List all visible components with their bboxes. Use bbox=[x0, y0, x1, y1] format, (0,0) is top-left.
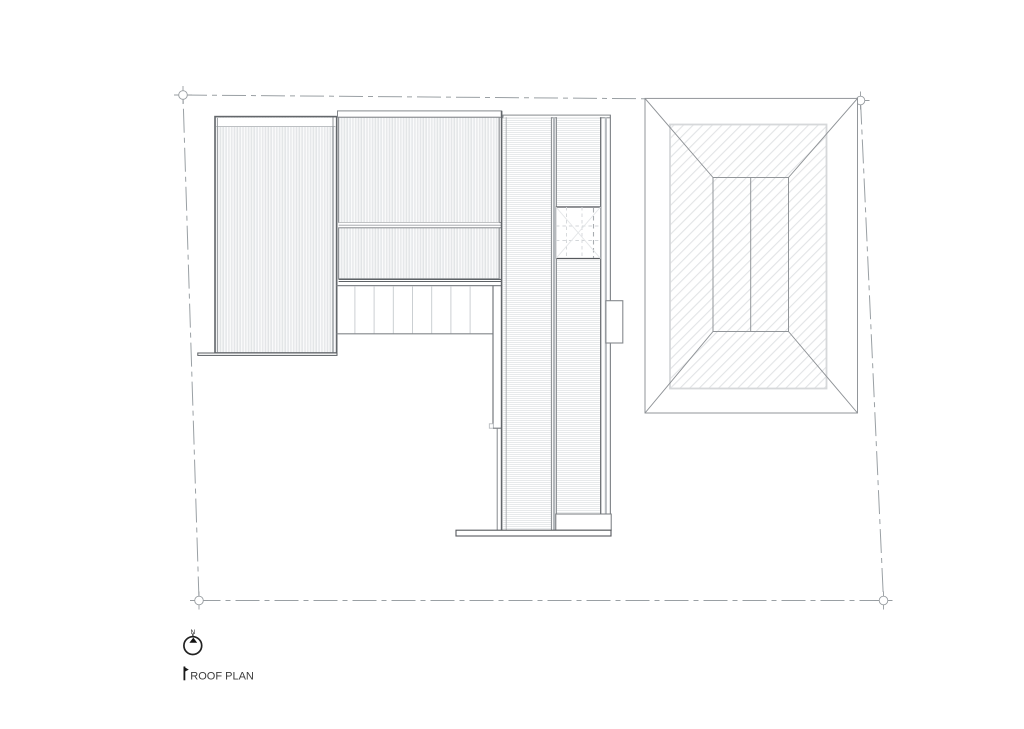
svg-text:ROOF PLAN: ROOF PLAN bbox=[190, 671, 254, 683]
